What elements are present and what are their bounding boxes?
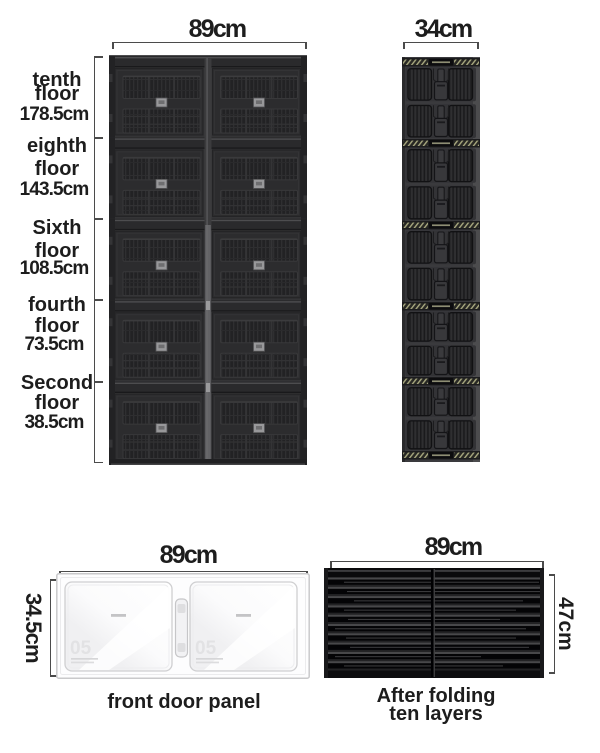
svg-text:05: 05 bbox=[195, 638, 217, 659]
svg-text:05: 05 bbox=[70, 638, 92, 659]
